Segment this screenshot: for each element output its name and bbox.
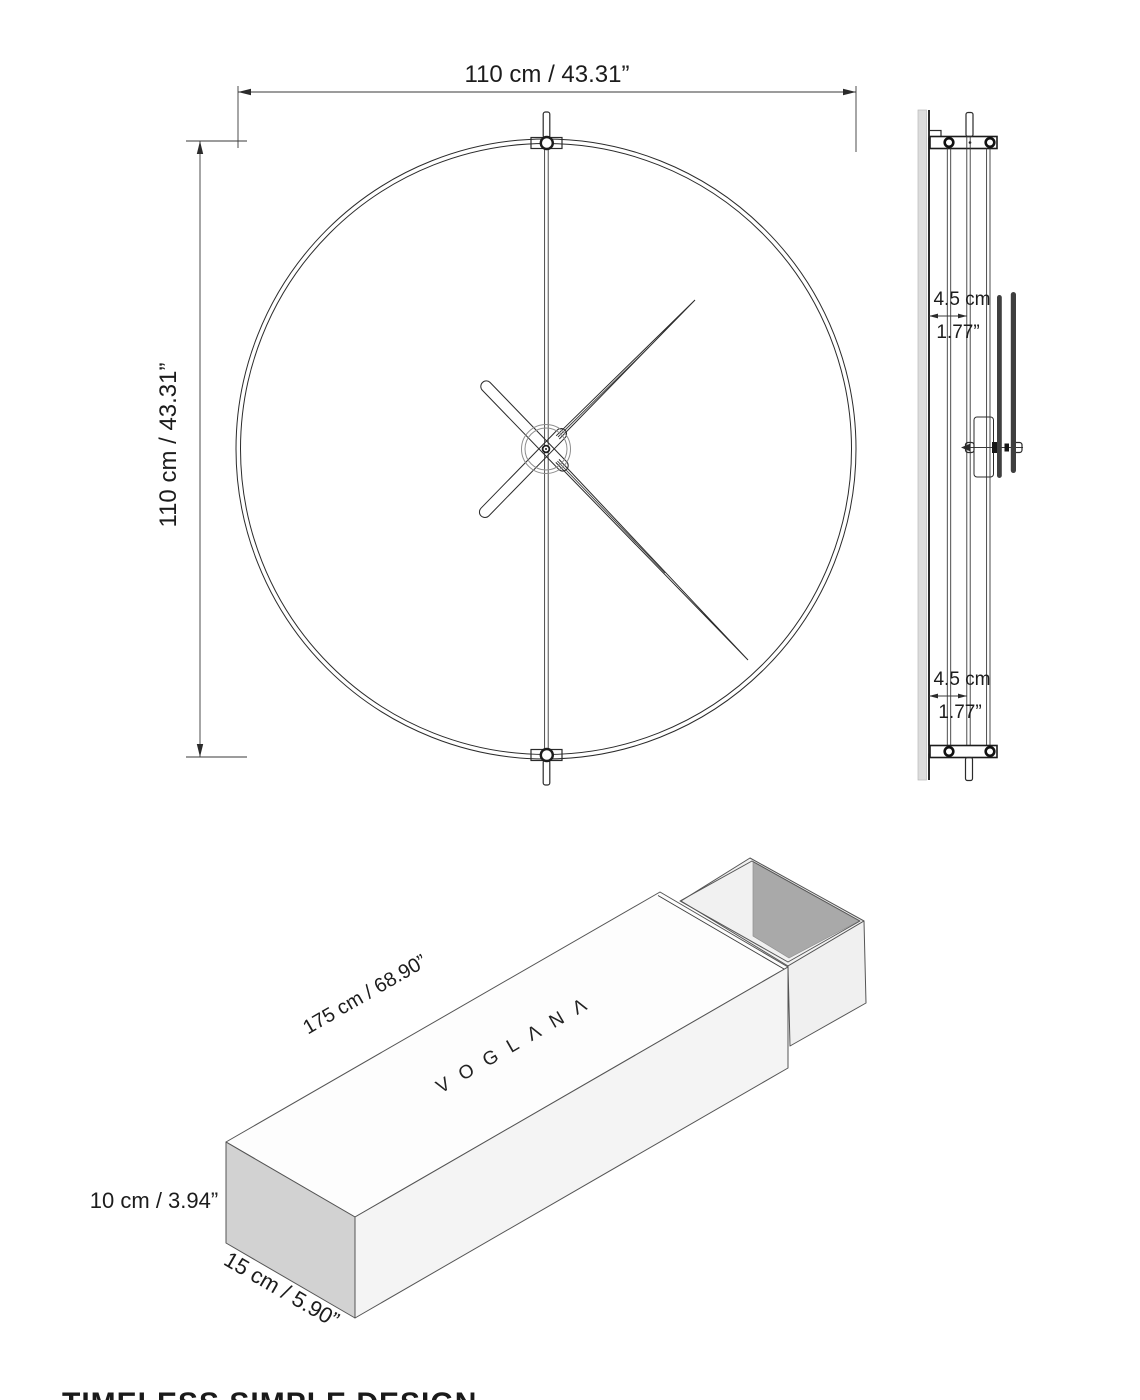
bottom-depth-in-label: 1.77” xyxy=(938,702,981,723)
box-height-label: 10 cm / 3.94” xyxy=(90,1188,218,1213)
hand-hub-side xyxy=(1005,444,1010,452)
top-depth-in-label: 1.77” xyxy=(936,322,979,343)
movement-box xyxy=(974,417,994,477)
bracket-screw xyxy=(986,138,995,147)
clock-dimension-diagram: 110 cm / 43.31” 110 cm / 43.31” xyxy=(0,0,1140,1400)
bottom-clamp-screw xyxy=(541,749,553,761)
width-dimension-label: 110 cm / 43.31” xyxy=(465,61,630,88)
hour-hand xyxy=(479,379,748,660)
side-rods xyxy=(947,137,990,746)
packaging-view: 175 cm / 68.90” VOGLΛNΛ 10 cm / 3.94” 15… xyxy=(90,858,866,1332)
technical-drawing-page: 110 cm / 43.31” 110 cm / 43.31” xyxy=(0,0,1140,1400)
top-pin-side xyxy=(966,113,973,137)
bottom-pin-side xyxy=(966,758,973,781)
bottom-pin xyxy=(543,760,550,785)
dim-arrow-right xyxy=(843,89,856,95)
dim-arrow-left xyxy=(238,89,251,95)
center-hub xyxy=(522,425,571,474)
bracket-screw xyxy=(986,747,995,756)
top-depth-dimension: 4.5 cm 1.77” xyxy=(929,289,991,343)
top-pin xyxy=(543,112,550,138)
box-length-label: 175 cm / 68.90” xyxy=(299,951,430,1040)
bottom-depth-dimension: 4.5 cm 1.77” xyxy=(929,669,991,723)
top-clamp-screw xyxy=(541,137,553,149)
bracket-screw xyxy=(945,138,954,147)
front-view: 110 cm / 43.31” 110 cm / 43.31” xyxy=(155,61,856,785)
top-bracket xyxy=(929,113,997,149)
minute-hand xyxy=(477,300,695,520)
side-view: 4.5 cm 1.77” 4.5 cm 1.77” xyxy=(918,110,1023,781)
bracket-screw xyxy=(945,747,954,756)
bottom-depth-cm-label: 4.5 cm xyxy=(933,669,990,690)
dim-arrow-top xyxy=(197,141,203,154)
top-depth-cm-label: 4.5 cm xyxy=(933,289,990,310)
bottom-bracket xyxy=(929,746,997,781)
dim-arrow-bottom xyxy=(197,744,203,757)
height-dimension: 110 cm / 43.31” xyxy=(155,141,247,757)
height-dimension-label: 110 cm / 43.31” xyxy=(155,363,182,528)
wall-section xyxy=(918,110,927,780)
clock-hands xyxy=(477,300,748,660)
footer-caption: TIMELESS SIMPLE DESIGN xyxy=(62,1387,477,1400)
